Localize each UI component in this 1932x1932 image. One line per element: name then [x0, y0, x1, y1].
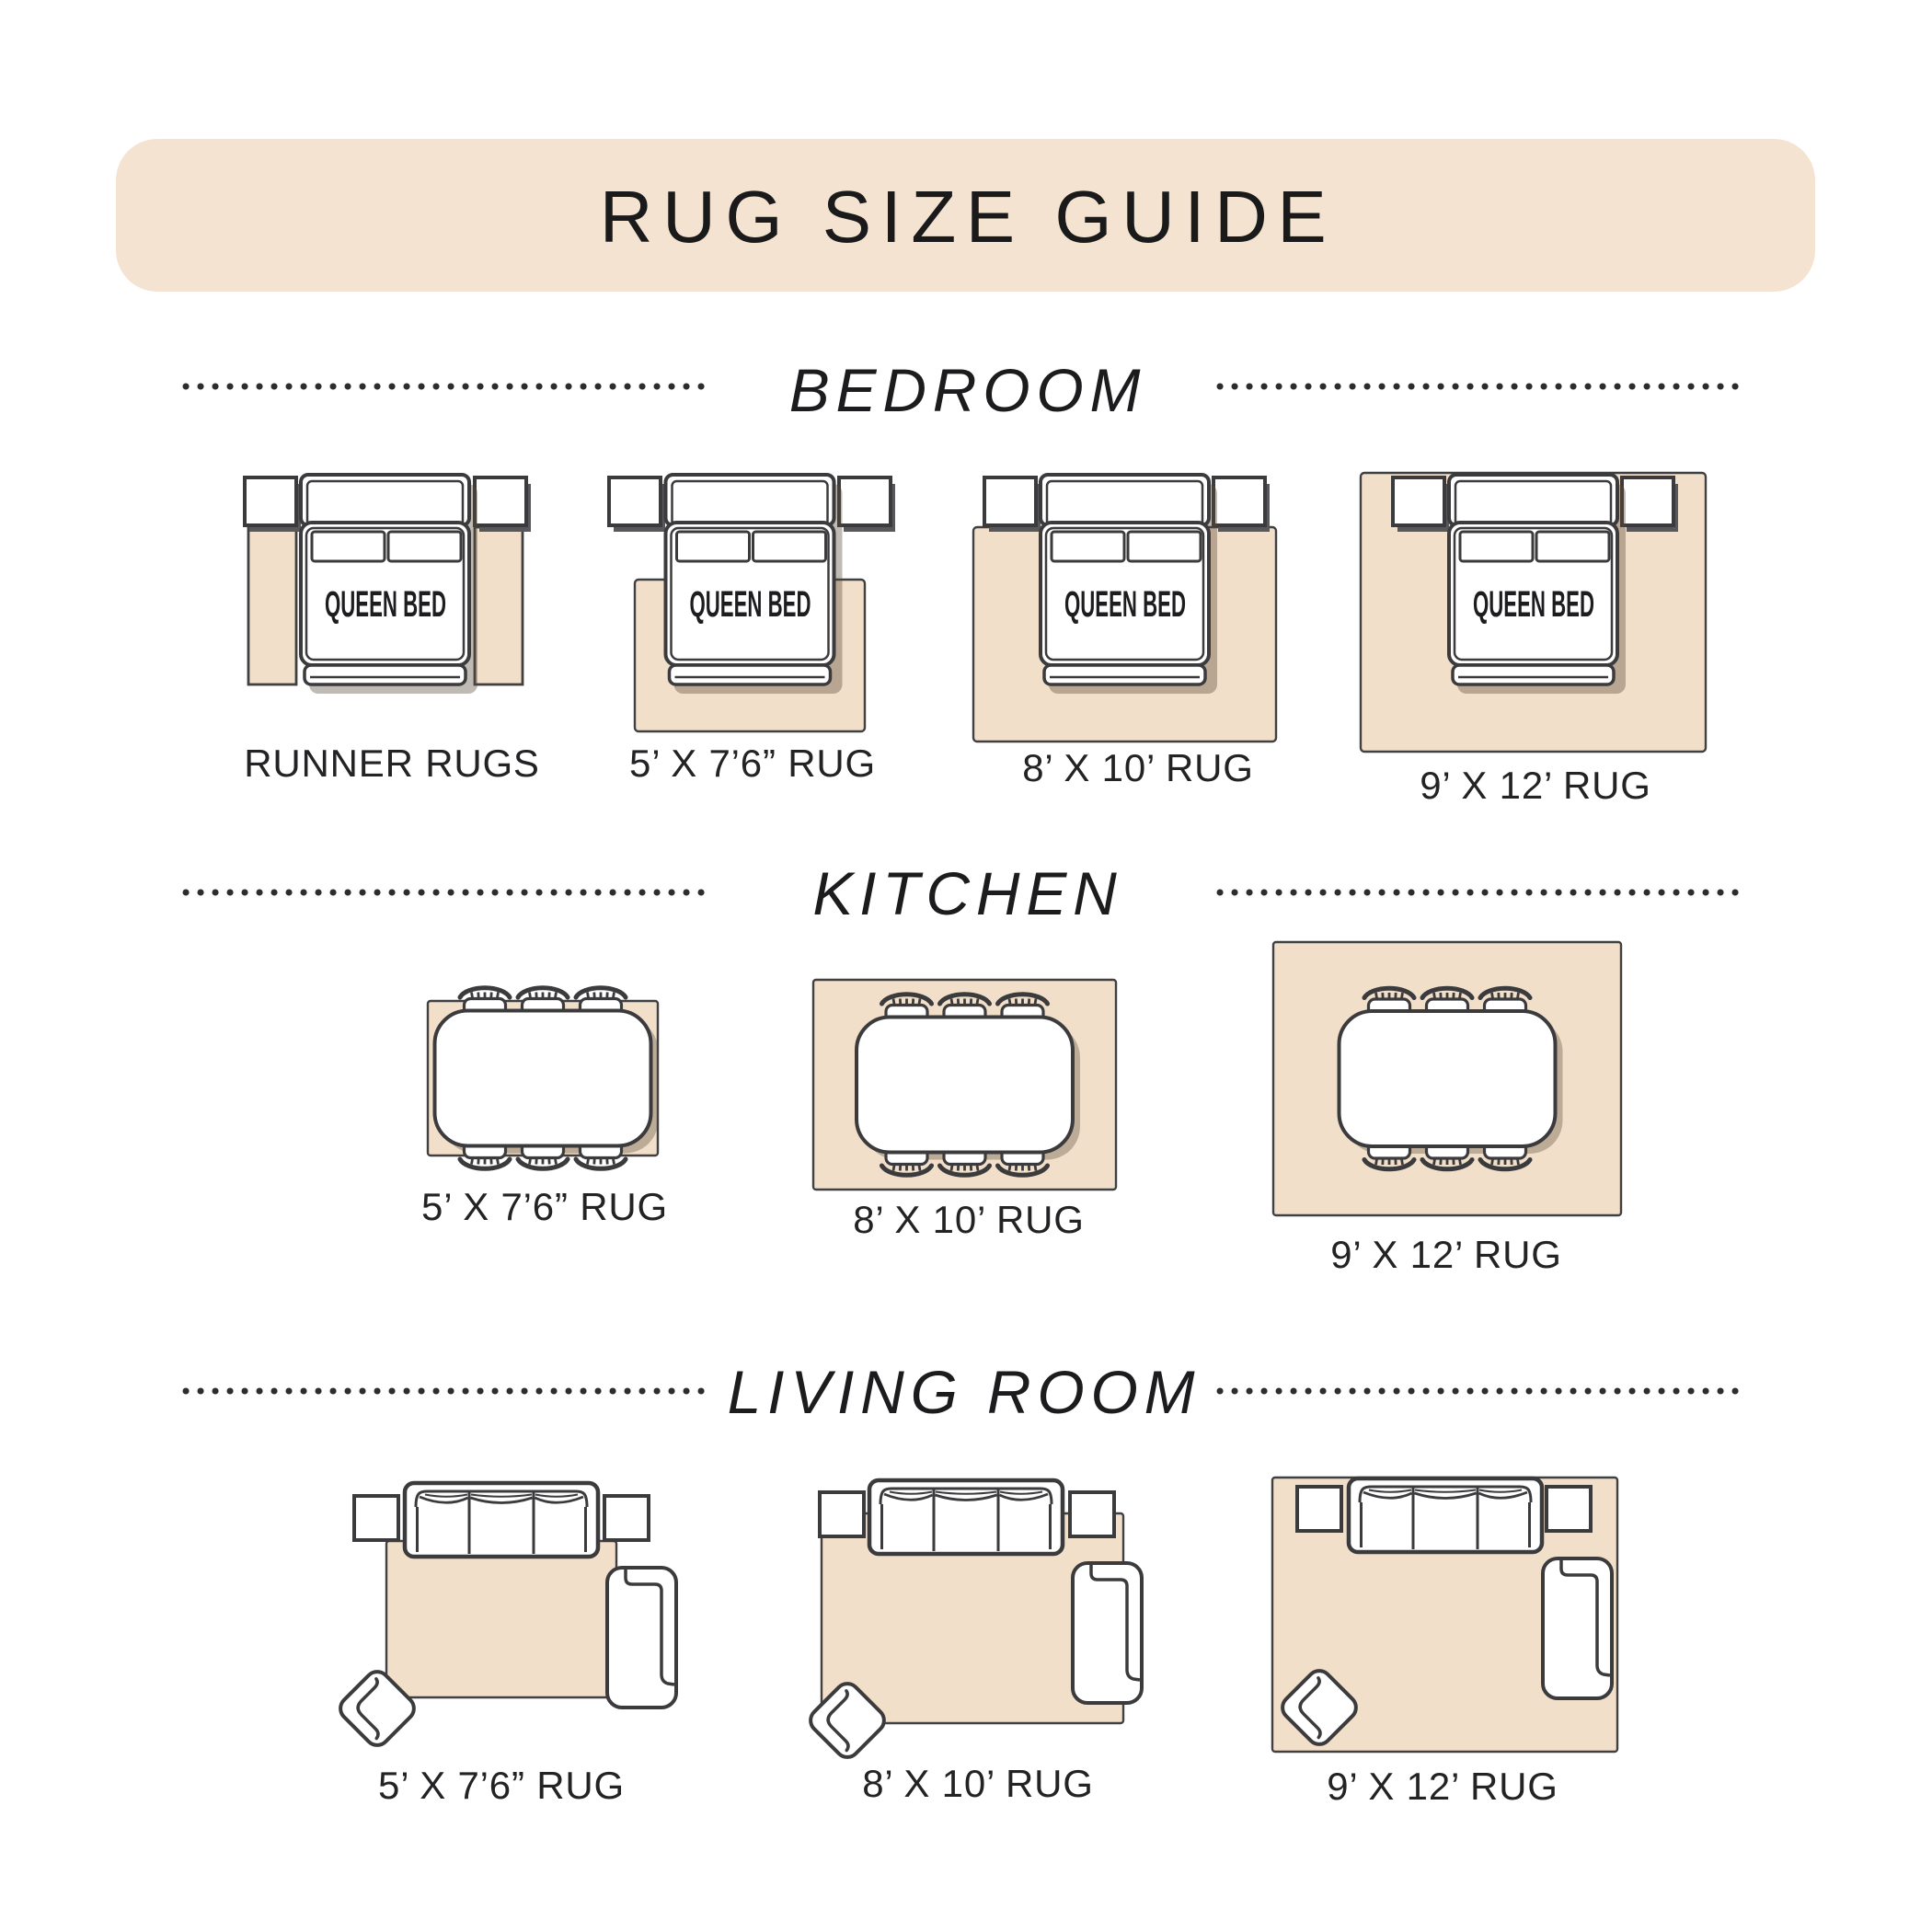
svg-text:8’ X 10’ RUG: 8’ X 10’ RUG — [853, 1198, 1085, 1241]
svg-text:8’ X 10’ RUG: 8’ X 10’ RUG — [862, 1762, 1094, 1805]
svg-text:9’ X 12’ RUG: 9’ X 12’ RUG — [1420, 764, 1651, 807]
svg-text:KITCHEN: KITCHEN — [812, 859, 1122, 927]
svg-text:5’ X 7’6” RUG: 5’ X 7’6” RUG — [378, 1764, 625, 1807]
svg-text:5’ X 7’6” RUG: 5’ X 7’6” RUG — [629, 742, 876, 785]
svg-text:5’ X 7’6” RUG: 5’ X 7’6” RUG — [421, 1185, 668, 1228]
svg-text:LIVING ROOM: LIVING ROOM — [728, 1358, 1202, 1426]
svg-text:RUNNER RUGS: RUNNER RUGS — [244, 742, 539, 785]
svg-text:9’ X 12’ RUG: 9’ X 12’ RUG — [1330, 1233, 1562, 1276]
svg-text:RUG SIZE GUIDE: RUG SIZE GUIDE — [600, 176, 1336, 258]
svg-text:BEDROOM: BEDROOM — [789, 356, 1147, 424]
svg-text:8’ X 10’ RUG: 8’ X 10’ RUG — [1022, 746, 1254, 789]
svg-text:9’ X 12’ RUG: 9’ X 12’ RUG — [1327, 1765, 1558, 1808]
